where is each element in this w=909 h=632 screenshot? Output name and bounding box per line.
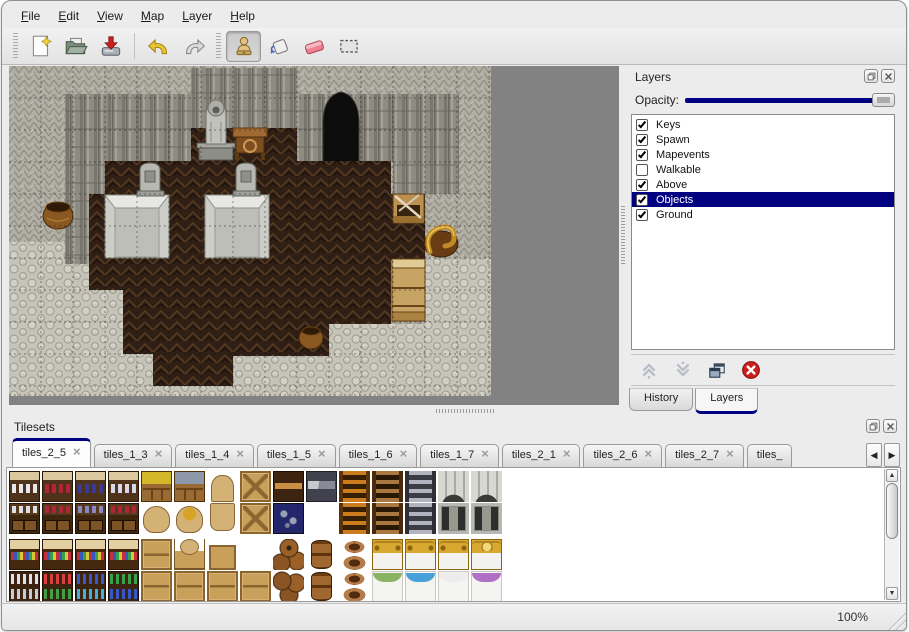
tile-s2[interactable]	[42, 539, 73, 570]
save-file-button[interactable]	[93, 31, 128, 62]
tile-bd-g[interactable]	[372, 571, 403, 602]
status-bar: 100%	[2, 603, 906, 630]
tile-lad-g[interactable]	[405, 503, 436, 534]
layer-name: Mapevents	[656, 149, 710, 161]
tile-shb-r[interactable]	[42, 503, 73, 534]
tile-s2b-b[interactable]	[75, 571, 106, 602]
cave-entrance	[323, 92, 359, 162]
map-canvas[interactable]	[9, 66, 619, 405]
tile-lad-b[interactable]	[372, 471, 403, 502]
new-file-icon	[28, 33, 54, 59]
layer-row-spawn[interactable]: Spawn	[632, 132, 894, 147]
tileset-tab-tiles_1_7[interactable]: tiles_1_7×	[420, 444, 499, 467]
tile-shb-b[interactable]	[75, 503, 106, 534]
layer-name: Above	[656, 179, 687, 191]
duplicate-layer-button[interactable]	[705, 358, 729, 382]
move-up-icon	[639, 360, 659, 380]
redo-button[interactable]	[176, 31, 211, 62]
move-layer-up-button[interactable]	[637, 358, 661, 382]
toolbar-separator	[134, 33, 135, 59]
menu-item-layer[interactable]: Layer	[173, 6, 221, 26]
tile-door[interactable]	[438, 503, 469, 534]
tile-bed-hp[interactable]	[471, 539, 502, 570]
tileset-tab-label: tiles_1_7	[430, 449, 474, 461]
scroll-tabs-right-button[interactable]: ▶	[884, 443, 900, 467]
tile-chd[interactable]	[273, 471, 304, 502]
tile-crx[interactable]	[240, 471, 271, 502]
duplicate-icon	[707, 360, 727, 380]
tileset-tab-label: tiles_2_5	[22, 447, 66, 459]
tileset-tab-label: tiles_2_6	[593, 449, 637, 461]
tile-crate[interactable]	[174, 571, 205, 602]
float-icon	[868, 421, 879, 432]
tile-bed-h[interactable]	[438, 539, 469, 570]
tileset-tab-label: tiles_1_5	[267, 449, 311, 461]
tileset-tab-tiles_2_7[interactable]: tiles_2_7×	[665, 444, 744, 467]
tile-pl-y[interactable]	[141, 471, 172, 502]
layer-list: KeysSpawnMapeventsWalkableAboveObjectsGr…	[631, 114, 895, 350]
layers-panel: Layers Opacity: KeysSpawnMap	[627, 66, 899, 414]
tile-s2[interactable]	[75, 539, 106, 570]
tile-crate[interactable]	[141, 571, 172, 602]
close-tab-icon[interactable]: ×	[563, 449, 571, 459]
map-content	[9, 66, 491, 396]
pot	[299, 327, 323, 349]
tile-s2b-m[interactable]	[42, 571, 73, 602]
tile-pot-t[interactable]	[339, 539, 370, 570]
tile-bed-h[interactable]	[372, 539, 403, 570]
tile-ore[interactable]	[273, 503, 304, 534]
layer-row-mapevents[interactable]: Mapevents	[632, 147, 894, 162]
new-file-button[interactable]	[23, 31, 58, 62]
layer-visibility-checkbox[interactable]	[636, 194, 648, 206]
dock-tab-history[interactable]: History	[629, 388, 693, 411]
tile-lad-g[interactable]	[405, 471, 436, 502]
tile-crate-s[interactable]	[207, 539, 238, 570]
resize-grip[interactable]	[888, 612, 906, 630]
layer-name: Walkable	[656, 164, 701, 176]
splitter-grip	[436, 409, 496, 413]
opacity-row: Opacity:	[627, 90, 899, 110]
menu-item-edit[interactable]: Edit	[49, 6, 88, 26]
fill-tool-button[interactable]	[261, 31, 296, 62]
layer-row-walkable[interactable]: Walkable	[632, 162, 894, 177]
tileset-tab-tiles_1_5[interactable]: tiles_1_5×	[257, 444, 336, 467]
scroll-down-button[interactable]: ▼	[886, 587, 898, 600]
toolbar	[2, 28, 906, 65]
opacity-slider-handle[interactable]	[872, 93, 895, 107]
tile-pl-b[interactable]	[174, 471, 205, 502]
opacity-slider[interactable]	[685, 92, 895, 108]
float-panel-button[interactable]	[864, 69, 878, 83]
menu-item-file[interactable]: File	[12, 6, 49, 26]
menu-item-help[interactable]: Help	[221, 6, 264, 26]
tile-crx[interactable]	[240, 503, 271, 534]
tileset-tab-tiles_2_5[interactable]: tiles_2_5×	[12, 438, 91, 467]
scroll-tabs-left-button[interactable]: ◀	[866, 443, 882, 467]
close-tab-icon[interactable]: ×	[73, 447, 81, 457]
close-panel-button[interactable]	[883, 419, 897, 433]
broken-crate	[393, 194, 424, 223]
layer-visibility-checkbox[interactable]	[636, 209, 648, 221]
tile-bd-w[interactable]	[438, 571, 469, 602]
redo-icon	[181, 33, 207, 59]
rect-select-tool-button[interactable]	[331, 31, 366, 62]
gravestone	[233, 163, 260, 196]
tilesets-panel: Tilesets tiles_2_5×tiles_1_3×tiles_1_4×t…	[6, 416, 901, 604]
open-file-button[interactable]	[58, 31, 93, 62]
tile-sck-t[interactable]	[207, 471, 238, 502]
tileset-tab-tiles_1_3[interactable]: tiles_1_3×	[94, 444, 173, 467]
tileset-tab-label: tiles_	[757, 449, 783, 461]
tile-lad-o[interactable]	[339, 471, 370, 502]
layers-panel-title: Layers	[635, 70, 671, 84]
tile-brl-u[interactable]	[306, 539, 337, 570]
tileset-tab-tiles_1_6[interactable]: tiles_1_6×	[339, 444, 418, 467]
tile-chg[interactable]	[306, 471, 337, 502]
tilesets-panel-header: Tilesets	[6, 416, 901, 438]
close-tab-icon[interactable]: ×	[155, 449, 163, 459]
float-icon	[866, 71, 877, 82]
save-icon	[98, 33, 124, 59]
layer-visibility-checkbox[interactable]	[636, 134, 648, 146]
tile-door[interactable]	[471, 503, 502, 534]
map-scene	[9, 66, 619, 405]
tile-arch[interactable]	[471, 471, 502, 502]
close-tab-icon[interactable]: ×	[481, 449, 489, 459]
scroll-up-button[interactable]: ▲	[886, 469, 898, 482]
rect-select-icon	[336, 33, 362, 59]
tile-brl-u[interactable]	[306, 571, 337, 602]
tileset-canvas[interactable]: ▲ ▼	[6, 467, 901, 602]
close-icon	[883, 71, 894, 82]
vertical-splitter[interactable]	[619, 66, 627, 405]
stamp-tool-button[interactable]	[226, 31, 261, 62]
splitter-grip	[621, 206, 625, 266]
tile-s2[interactable]	[9, 539, 40, 570]
layers-panel-header: Layers	[627, 66, 899, 88]
tile-shb-w[interactable]	[9, 503, 40, 534]
tile-crate[interactable]	[240, 571, 271, 602]
gravestone	[137, 163, 164, 196]
close-icon	[885, 421, 896, 432]
tile-sh-w[interactable]	[9, 471, 40, 502]
layer-visibility-checkbox[interactable]	[636, 119, 648, 131]
tileset-scrollbar[interactable]: ▲ ▼	[884, 469, 899, 600]
stamp-tool-icon	[231, 33, 257, 59]
close-tab-icon[interactable]: ×	[236, 449, 244, 459]
toolbar-drag-handle[interactable]	[13, 33, 18, 59]
tile-pot-b[interactable]	[339, 571, 370, 602]
move-layer-down-button[interactable]	[671, 358, 695, 382]
tileset-tab-label: tiles_2_1	[512, 449, 556, 461]
layer-row-objects[interactable]: Objects	[632, 192, 894, 207]
tile-lad-o[interactable]	[339, 503, 370, 534]
layer-name: Keys	[656, 119, 680, 131]
tileset-tab-label: tiles_1_6	[349, 449, 393, 461]
zoom-level: 100%	[837, 610, 868, 624]
tile-s2[interactable]	[108, 539, 139, 570]
tile-sck-o[interactable]	[174, 503, 205, 534]
layer-visibility-checkbox[interactable]	[636, 164, 648, 176]
close-tab-icon[interactable]: ×	[400, 449, 408, 459]
dock-tab-layers[interactable]: Layers	[695, 388, 758, 414]
layer-visibility-checkbox[interactable]	[636, 149, 648, 161]
move-down-icon	[673, 360, 693, 380]
tile-brl-p[interactable]	[273, 539, 304, 570]
delete-layer-button[interactable]	[739, 358, 763, 382]
tile-sck[interactable]	[141, 503, 172, 534]
tileset-tab-tiles[interactable]: tiles_	[747, 444, 793, 467]
tile-sh-b[interactable]	[75, 471, 106, 502]
tilesets-panel-title: Tilesets	[14, 420, 55, 434]
tileset-tab-label: tiles_1_4	[185, 449, 229, 461]
layer-row-keys[interactable]: Keys	[632, 117, 894, 132]
scrollbar-thumb[interactable]	[886, 483, 898, 539]
tile-s2b-g[interactable]	[108, 571, 139, 602]
close-tab-icon[interactable]: ×	[726, 449, 734, 459]
close-tab-icon[interactable]: ×	[645, 449, 653, 459]
opacity-slider-groove	[685, 98, 893, 103]
tileset-tab-tiles_1_4[interactable]: tiles_1_4×	[175, 444, 254, 467]
layer-row-above[interactable]: Above	[632, 177, 894, 192]
opacity-label: Opacity:	[635, 93, 679, 107]
tile-brl-p2[interactable]	[273, 571, 304, 602]
tile-crate[interactable]	[207, 571, 238, 602]
tile-crate[interactable]	[141, 539, 172, 570]
tileset-tab-label: tiles_1_3	[104, 449, 148, 461]
undo-icon	[146, 33, 172, 59]
tile-sck-c[interactable]	[174, 539, 205, 570]
layer-name: Ground	[656, 209, 693, 221]
tile-arch[interactable]	[438, 471, 469, 502]
app-window: FileEditViewMapLayerHelp	[1, 0, 907, 631]
tile-bd-p[interactable]	[471, 571, 502, 602]
tileset-tab-bar: tiles_2_5×tiles_1_3×tiles_1_4×tiles_1_5×…	[12, 438, 863, 467]
tile-sh-j[interactable]	[108, 471, 139, 502]
tile-s2b-j[interactable]	[9, 571, 40, 602]
delete-icon	[741, 360, 761, 380]
float-panel-button[interactable]	[866, 419, 880, 433]
menu-item-view[interactable]: View	[88, 6, 132, 26]
layer-name: Spawn	[656, 134, 690, 146]
layer-row-ground[interactable]: Ground	[632, 207, 894, 222]
tile-sck-b[interactable]	[207, 503, 238, 534]
pot	[43, 202, 73, 229]
layer-name: Objects	[656, 194, 693, 206]
open-folder-icon	[63, 33, 89, 59]
eraser-tool-button[interactable]	[296, 31, 331, 62]
fill-tool-icon	[266, 33, 292, 59]
layer-buttons	[631, 354, 895, 386]
undo-button[interactable]	[141, 31, 176, 62]
eraser-tool-icon	[301, 33, 327, 59]
layer-visibility-checkbox[interactable]	[636, 179, 648, 191]
dock-tab-bar: HistoryLayers	[629, 388, 760, 414]
toolbar-drag-handle[interactable]	[216, 33, 221, 59]
close-tab-icon[interactable]: ×	[318, 449, 326, 459]
tileset-tab-tiles_2_6[interactable]: tiles_2_6×	[583, 444, 662, 467]
tile-sh-r[interactable]	[42, 471, 73, 502]
menu-bar: FileEditViewMapLayerHelp	[2, 4, 906, 28]
tile-shb-r2[interactable]	[108, 503, 139, 534]
tileset-tab-tiles_2_1[interactable]: tiles_2_1×	[502, 444, 581, 467]
tileset-tab-label: tiles_2_7	[675, 449, 719, 461]
tile-lad-b[interactable]	[372, 503, 403, 534]
menu-item-map[interactable]: Map	[132, 6, 173, 26]
tile-bd-b[interactable]	[405, 571, 436, 602]
close-panel-button[interactable]	[881, 69, 895, 83]
tile-bed-h[interactable]	[405, 539, 436, 570]
